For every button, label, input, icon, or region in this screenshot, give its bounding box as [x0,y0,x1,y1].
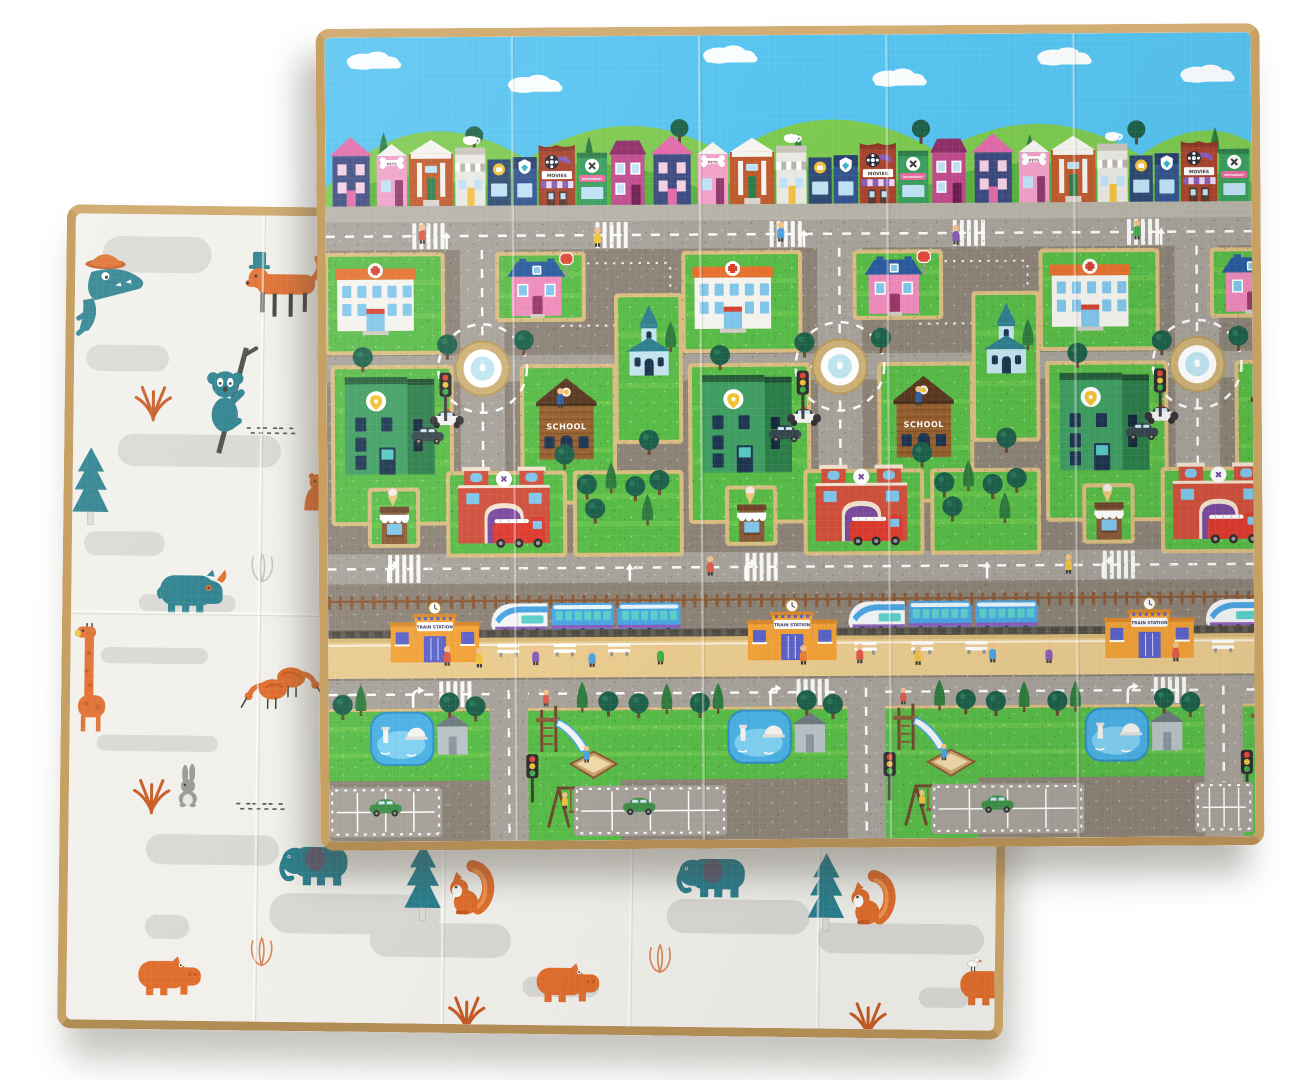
city-side-print: PETSMOVIESRESTAURANTPETSMOVIESRESTAURANT… [325,32,1256,842]
play-mat-product-photo: PETSMOVIESRESTAURANTPETSMOVIESRESTAURANT… [0,0,1296,1080]
magenta-house [1251,136,1255,201]
city-mat-artwork: PETSMOVIESRESTAURANTPETSMOVIESRESTAURANT… [325,32,1256,842]
mat-city-side: PETSMOVIESRESTAURANTPETSMOVIESRESTAURANT… [315,23,1264,851]
